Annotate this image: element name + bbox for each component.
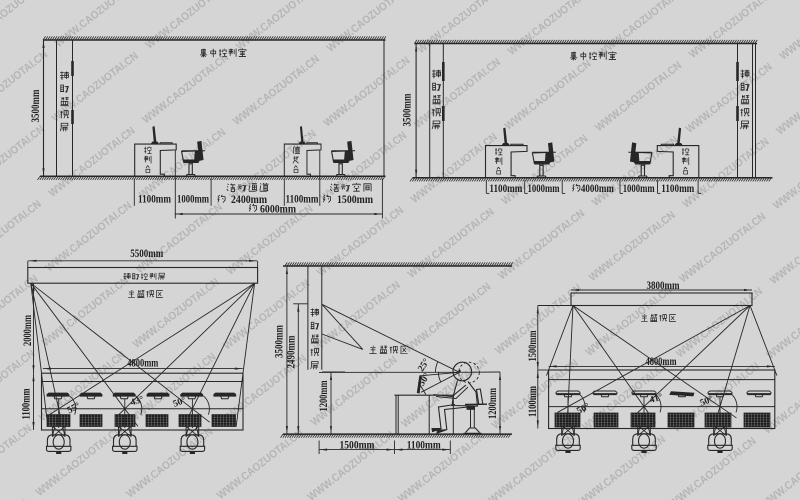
svg-text:6000mm: 6000mm [260, 201, 296, 215]
svg-text:4800mm: 4800mm [127, 356, 158, 370]
svg-text:1000mm: 1000mm [177, 192, 209, 206]
svg-text:1100mm: 1100mm [525, 386, 539, 417]
svg-text:1500mm: 1500mm [340, 437, 375, 451]
svg-text:1000mm: 1000mm [528, 181, 560, 195]
svg-text:2000mm: 2000mm [20, 315, 34, 346]
svg-text:1500mm: 1500mm [525, 331, 539, 362]
svg-text:1000mm: 1000mm [623, 181, 655, 195]
svg-text:1100mm: 1100mm [18, 389, 32, 420]
svg-text:5500mm: 5500mm [130, 246, 163, 260]
svg-text:4000mm: 4000mm [581, 181, 614, 195]
svg-text:1100mm: 1100mm [661, 181, 694, 195]
svg-text:1100mm: 1100mm [138, 192, 171, 206]
svg-text:1200mm: 1200mm [485, 388, 499, 419]
svg-text:1200mm: 1200mm [316, 381, 330, 412]
svg-text:3500mm: 3500mm [399, 94, 413, 127]
svg-text:1500mm: 1500mm [337, 192, 373, 206]
svg-text:2490mm: 2490mm [283, 336, 297, 369]
svg-text:1100mm: 1100mm [489, 181, 522, 195]
svg-text:3500mm: 3500mm [28, 90, 42, 123]
svg-text:1100mm: 1100mm [407, 437, 441, 451]
